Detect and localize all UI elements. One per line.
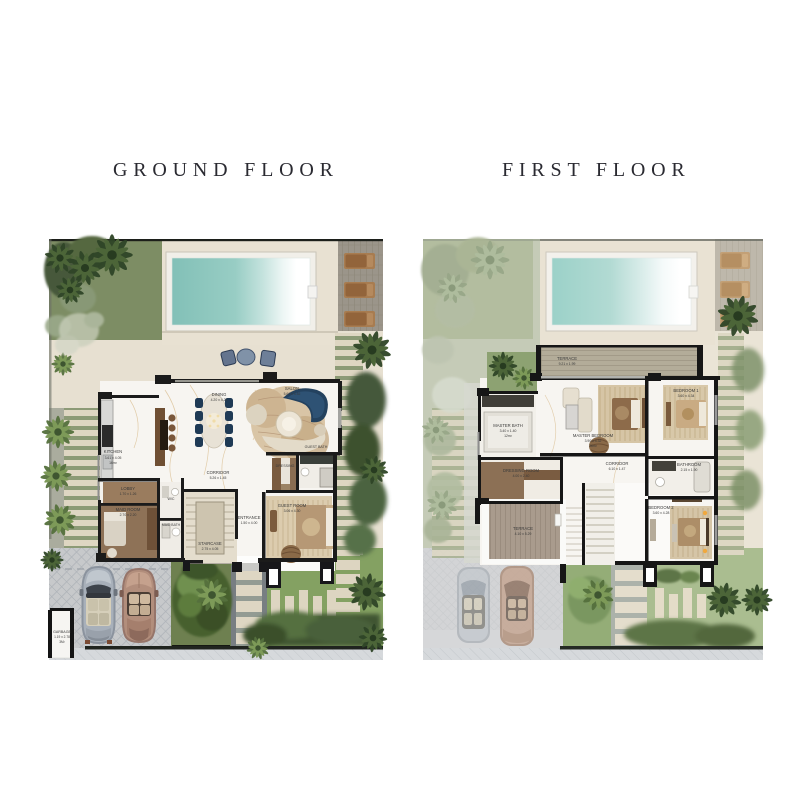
svg-text:5.26 x 1.45: 5.26 x 1.45 [210, 476, 227, 480]
svg-text:W/C: W/C [168, 497, 175, 501]
svg-text:2.15 x 1.90: 2.15 x 1.90 [681, 468, 698, 472]
svg-text:KITCHEN: KITCHEN [104, 449, 122, 454]
svg-text:3.06 x 4.30: 3.06 x 4.30 [284, 509, 301, 513]
svg-text:3.61 x 4.05: 3.61 x 4.05 [105, 456, 122, 460]
svg-text:DRESSING: DRESSING [276, 464, 295, 468]
svg-text:1.19 x 2.78: 1.19 x 2.78 [54, 635, 70, 639]
svg-text:3.60 x 4.34: 3.60 x 4.34 [678, 394, 695, 398]
svg-text:3.40 x 1.40: 3.40 x 1.40 [500, 429, 517, 433]
svg-text:MASTER BEDROOM: MASTER BEDROOM [573, 433, 614, 438]
svg-text:6.10 x 1.47: 6.10 x 1.47 [609, 467, 626, 471]
svg-text:1.50 x 4.00: 1.50 x 4.00 [241, 521, 258, 525]
svg-text:ENTRANCE: ENTRANCE [237, 515, 260, 520]
svg-text:26m²: 26m² [589, 444, 598, 448]
svg-text:3M²: 3M² [59, 640, 65, 644]
svg-text:MASTER BATH: MASTER BATH [493, 423, 522, 428]
svg-text:SALON: SALON [285, 386, 299, 391]
svg-text:CORRIDOR: CORRIDOR [207, 470, 230, 475]
svg-text:DRESSING ROOM: DRESSING ROOM [503, 468, 540, 473]
svg-text:5.60 x 4.52: 5.60 x 4.52 [284, 392, 301, 396]
svg-text:LOBBY: LOBBY [121, 486, 135, 491]
svg-text:2.70 x 2.20: 2.70 x 2.20 [120, 513, 137, 517]
svg-text:TERRACE: TERRACE [513, 526, 533, 531]
svg-text:GARBAGE: GARBAGE [53, 630, 71, 634]
svg-text:2.75 x 4.05: 2.75 x 4.05 [202, 547, 219, 551]
svg-text:9.21 x 1.99: 9.21 x 1.99 [559, 362, 576, 366]
svg-text:16m²: 16m² [109, 461, 118, 465]
svg-text:CORRIDOR: CORRIDOR [606, 461, 629, 466]
svg-text:TERRACE: TERRACE [557, 356, 577, 361]
svg-text:4.20 x 4.22: 4.20 x 4.22 [211, 398, 228, 402]
svg-text:4.10 x 5.29: 4.10 x 5.29 [515, 532, 532, 536]
svg-text:MAID ROOM: MAID ROOM [116, 507, 141, 512]
svg-text:4.00 x 2.40: 4.00 x 2.40 [513, 474, 530, 478]
svg-text:STAIRCASE: STAIRCASE [198, 541, 222, 546]
svg-text:3.60 x 4.28: 3.60 x 4.28 [653, 511, 670, 515]
svg-text:1.70 x 1.26: 1.70 x 1.26 [120, 492, 137, 496]
svg-text:BEDROOM 1: BEDROOM 1 [673, 388, 699, 393]
svg-text:12m²: 12m² [504, 434, 513, 438]
svg-text:DINING: DINING [212, 392, 227, 397]
svg-text:MAID BATH: MAID BATH [162, 523, 181, 527]
svg-text:GUEST ROOM: GUEST ROOM [278, 503, 307, 508]
svg-text:BATHROOM: BATHROOM [677, 462, 701, 467]
svg-text:3.90 x 4.32: 3.90 x 4.32 [585, 439, 602, 443]
svg-text:BEDROOM 2: BEDROOM 2 [648, 505, 674, 510]
svg-text:GUEST BATH: GUEST BATH [305, 445, 328, 449]
